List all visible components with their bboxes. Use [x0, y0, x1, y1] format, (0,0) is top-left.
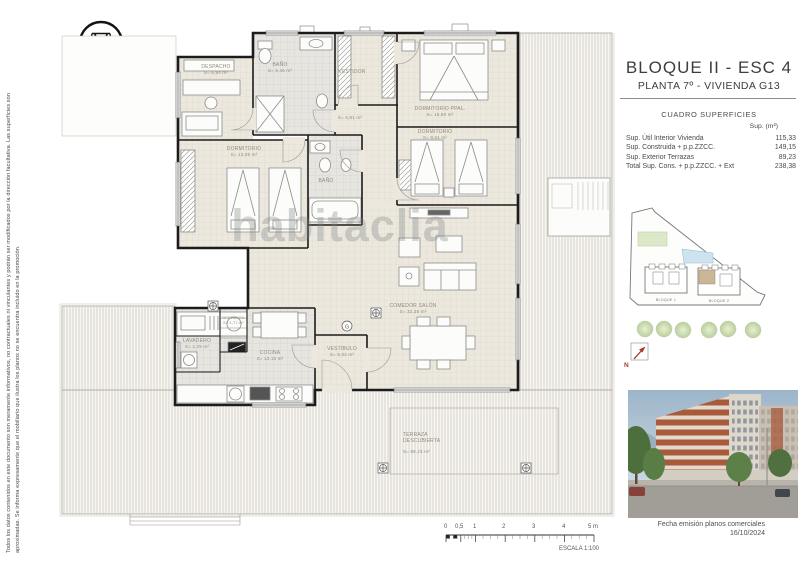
scale-tick: 0,5: [455, 524, 463, 530]
issue-caption: Fecha emisión planos comerciales: [598, 520, 765, 529]
north-label: N: [624, 362, 629, 369]
site-block1-label: BLOQUE 1: [656, 298, 676, 302]
north-arrow-icon: [628, 342, 650, 364]
scale-tick: 0: [444, 524, 447, 530]
building-photo: [628, 390, 798, 518]
site-plan: BLOQUE 1 BLOQUE 2: [625, 196, 797, 344]
scale-tick: 3: [532, 524, 535, 530]
site-highlighted-unit: [699, 270, 715, 284]
site-pool: [682, 249, 713, 263]
room-label-lavadero: LAVADERO S= 2,25 m²: [176, 338, 218, 349]
site-garden: [638, 232, 667, 246]
scale-bar: 0 0,5 1 2 3 4 5 m ESCALA 1:100: [443, 524, 605, 554]
scale-tick: 2: [502, 524, 505, 530]
photo-road: [628, 486, 798, 518]
issue-block: Fecha emisión planos comerciales 16/10/2…: [598, 520, 765, 538]
room-label-bano1: BAÑO S= 5,46 m²: [258, 62, 302, 73]
room-label-bano2: BAÑO: [312, 178, 340, 184]
room-label-dorm3: DORMITORIO S= 13,05 m²: [218, 146, 270, 157]
room-label-dorm-ppal: DORMITORIO PPAL. S= 15,80 m²: [408, 106, 472, 117]
room-label-vestibulo: VESTÍBULO S= 5,02 m²: [317, 346, 367, 357]
room-label-comedor: COMEDOR SALÓN S= 32,38 m²: [380, 303, 446, 314]
site-block1: [645, 264, 687, 293]
scale-tick: 4: [562, 524, 565, 530]
room-label-despacho: DESPACHO S= 6,94 m²: [190, 64, 242, 75]
room-label-cocina: COCINA S= 13,10 m²: [248, 350, 292, 361]
photo-car-red: [629, 487, 645, 496]
room-label-dorm2: DORMITORIO S= 9,61 m²: [412, 129, 458, 140]
site-block2-label: BLOQUE 2: [709, 299, 729, 303]
site-block2: [698, 265, 740, 295]
watermark: habitaclia: [160, 200, 520, 252]
room-label-distribuidor: S= 6,81 m²: [330, 115, 370, 120]
issue-date: 16/10/2024: [598, 529, 765, 538]
photo-car-dark: [775, 489, 790, 497]
room-label-vestidor: VESTIDOR: [332, 69, 372, 75]
entry-marker-label: G: [345, 325, 349, 331]
scale-caption: ESCALA 1:100: [523, 546, 599, 552]
room-label-terraza: TERRAZA DESCUBIERTA S= 89,23 m²: [403, 432, 437, 454]
room-label-despensa: DESPENSA S= 1,77 m²: [220, 316, 247, 325]
site-trees: [637, 321, 761, 338]
scale-tick: 1: [473, 524, 476, 530]
scale-tick: 5 m: [588, 524, 598, 530]
scale-bar-ruler: [443, 533, 603, 545]
